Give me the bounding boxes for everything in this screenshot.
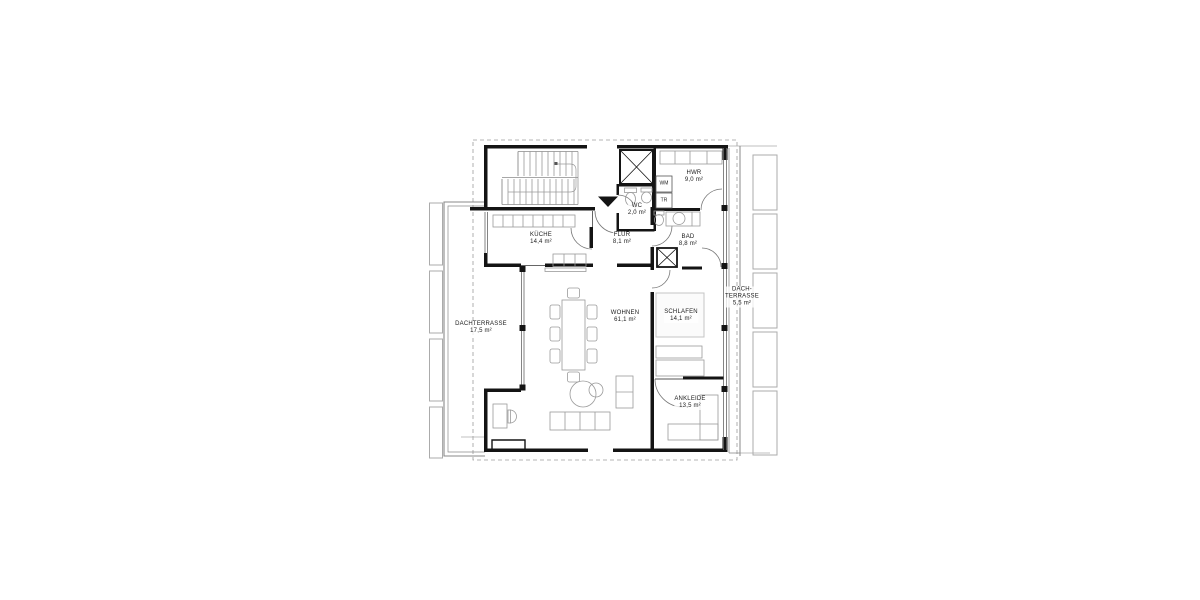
desk-and-chair — [493, 404, 517, 428]
wc-fixtures — [625, 188, 653, 206]
staircase — [502, 152, 578, 205]
floor-plan-drawing — [0, 0, 1200, 600]
armchair-round — [570, 381, 603, 407]
kitchen-island — [545, 254, 586, 272]
terrace-east-railing — [729, 146, 740, 456]
dining-table — [550, 288, 597, 382]
kitchen-counter — [493, 215, 575, 227]
washer-dryer-boxes — [656, 176, 672, 208]
entrance-arrow-icon — [598, 197, 618, 208]
bath-fixtures — [654, 211, 700, 226]
wardrobe — [668, 395, 718, 440]
shaft-bath — [657, 248, 677, 267]
side-unit — [616, 376, 633, 408]
glass-facade-east — [722, 148, 728, 450]
exterior-wall-step-detail — [492, 440, 525, 449]
bedroom-sideboard — [656, 346, 704, 376]
window-left-kitchen — [485, 212, 488, 253]
hwr-counter — [660, 151, 722, 164]
exterior-louvers-right — [728, 146, 777, 455]
bed — [656, 293, 704, 337]
terrace-west-railing — [444, 202, 485, 456]
exterior-louvers-left — [430, 203, 443, 458]
floor-plan-page: KÜCHE 14,4 m² FLUR 8,1 m² WC 2,0 m² HWR … — [0, 0, 1200, 600]
glass-facade-west — [520, 266, 546, 391]
shaft-top — [620, 150, 653, 184]
sofa — [550, 412, 610, 430]
